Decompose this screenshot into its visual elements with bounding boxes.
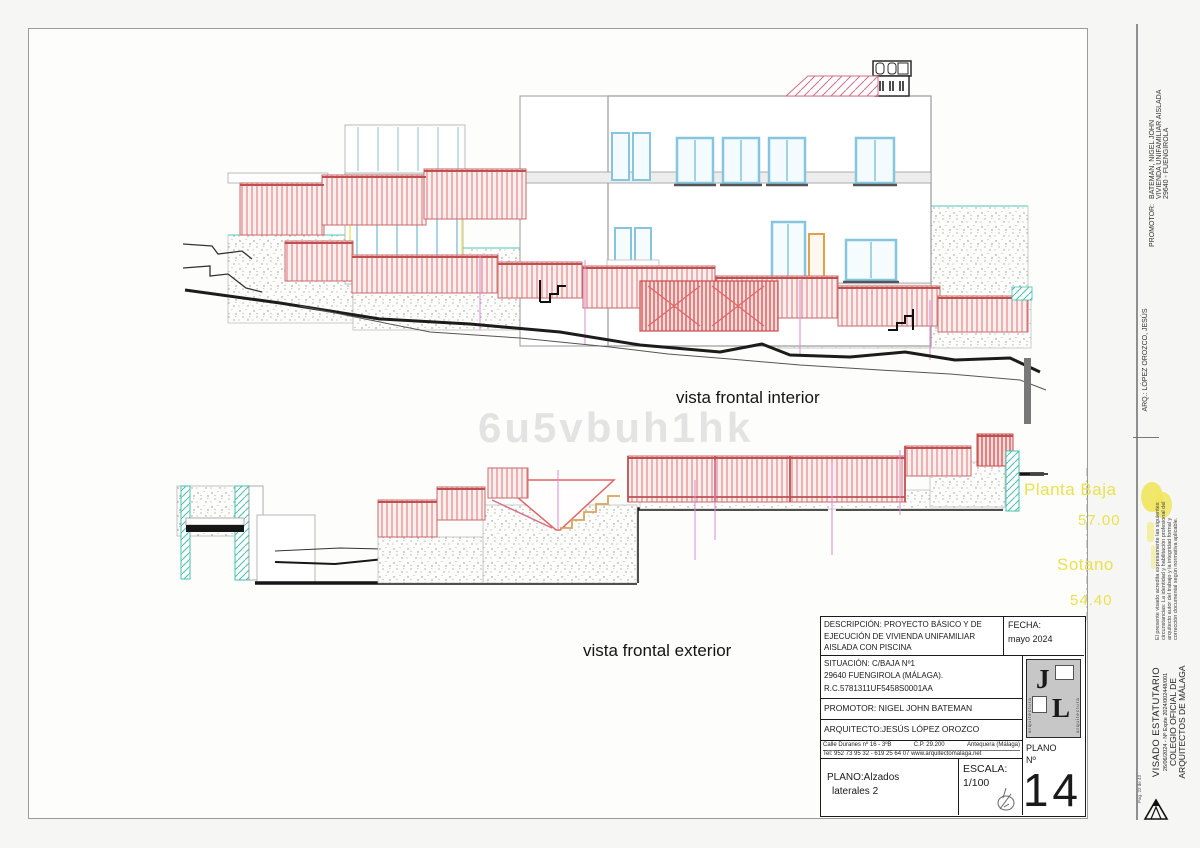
margin-promotor-name: BATEMAN, NIGEL JOHN (1149, 90, 1156, 199)
titleblock-descripcion: DESCRIPCIÓN: PROYECTO BÁSICO Y DE EJECUC… (821, 617, 1004, 656)
plan-sheet: { "sheet": { "watermark": "6u5vbuh1hk", … (0, 0, 1200, 848)
level-sotano-label: Sotano (1057, 555, 1114, 575)
label-vista-frontal-interior: vista frontal interior (676, 388, 820, 408)
elevation-exterior (177, 434, 1044, 583)
margin-promotor-type: VIVIENDA UNIFAMILIAR AISLADA (1156, 90, 1163, 199)
logo-notch (1055, 665, 1074, 680)
logo-notch (1032, 696, 1047, 713)
margin-visado-block: VISADO ESTATUTARIO 26/06/2024 - Nº Expte… (1152, 660, 1188, 784)
logo-letter-l: L (1052, 693, 1070, 724)
titleblock-plano: PLANO:Alzados laterales 2 (821, 759, 959, 815)
titleblock-promotor: PROMOTOR: NIGEL JOHN BATEMAN (821, 699, 1023, 720)
address-city: Antequera (Málaga) (967, 742, 1020, 750)
label-vista-frontal-exterior: vista frontal exterior (583, 641, 731, 661)
plano-num-label1: PLANO (1026, 743, 1057, 755)
signature-stamp-icon (992, 785, 1020, 813)
titleblock-escala: ESCALA: 1/100 (959, 759, 1023, 815)
descripcion-line: EJECUCIÓN DE VIVIENDA UNIFAMILIAR (824, 631, 1000, 643)
logo-letter-j: J (1036, 664, 1050, 695)
descripcion-line: AISLADA CON PISCINA (824, 642, 1000, 654)
situacion-line: 29640 FUENGIROLA (MÁLAGA). (824, 670, 1019, 682)
titleblock-address: Calle Duranes nº 16 - 3ºB C.P. 29.200 An… (821, 741, 1023, 759)
titleblock-arquitecto: ARQUITECTO:JESÚS LÓPEZ OROZCO (821, 720, 1023, 741)
margin-promotor-city: 29640 - FUENGIROLA (1163, 90, 1170, 199)
chimney (873, 61, 911, 96)
address-cp: C.P. 29.200 (914, 742, 945, 750)
titleblock-logo-cell: J L arquitectura arquitectura (1023, 656, 1084, 741)
fecha-value: mayo 2024 (1008, 633, 1080, 647)
plano-name-line1: PLANO:Alzados (827, 771, 952, 785)
logo-side-text: arquitectura (1075, 664, 1080, 733)
plano-name-line2: laterales 2 (827, 785, 952, 799)
situacion-line: R.C.5781311UF5458S0001AA (824, 683, 1019, 695)
level-planta-baja-value: 57.00 (1078, 512, 1121, 529)
level-sotano-value: 54.40 (1070, 592, 1113, 609)
title-block: DESCRIPCIÓN: PROYECTO BÁSICO Y DE EJECUC… (820, 616, 1086, 817)
titleblock-fecha: FECHA: mayo 2024 (1004, 617, 1084, 656)
level-planta-baja-label: Planta Baja (1024, 480, 1116, 500)
coa-malaga-logo-icon (1143, 797, 1169, 823)
descripcion-line: DESCRIPCIÓN: PROYECTO BÁSICO Y DE (824, 619, 1000, 631)
visado-title: VISADO ESTATUTARIO (1152, 660, 1163, 784)
margin-promotor-block: PROMOTOR: BATEMAN, NIGEL JOHN VIVIENDA U… (1149, 117, 1175, 247)
margin-promotor-label: PROMOTOR: (1149, 204, 1175, 247)
logo-side-text: arquitectura (1027, 664, 1032, 733)
address-phone: Tel: 952 73 95 32 - 619 25 64 07 www.arq… (823, 751, 1020, 759)
situacion-line: SITUACIÓN: C/BAJA Nº1 (824, 658, 1019, 670)
visado-colegio-line2: ARQUITECTOS DE MÁLAGA (1178, 660, 1188, 784)
margin-visado-disclaimer: El presente visado acredita expresamente… (1155, 424, 1179, 640)
disclaimer-line: corrección documental según normativa ap… (1173, 424, 1179, 640)
margin-architect-line: ARQ.: LÓPEZ OROZCO, JESÚS (1142, 305, 1152, 415)
plano-number: 14 (1023, 767, 1082, 813)
pergola-hatch (786, 76, 878, 96)
escala-label: ESCALA: (963, 762, 1018, 776)
section-cut-bar (1024, 358, 1031, 424)
elevation-interior (183, 61, 1046, 424)
jl-architecture-logo: J L arquitectura arquitectura (1026, 659, 1081, 738)
titleblock-situacion: SITUACIÓN: C/BAJA Nº1 29640 FUENGIROLA (… (821, 656, 1023, 699)
address-street: Calle Duranes nº 16 - 3ºB (823, 742, 891, 750)
pool-railing-block (640, 281, 778, 331)
titleblock-plano-num: PLANO Nº 14 (1023, 741, 1084, 815)
fecha-label: FECHA: (1008, 619, 1080, 633)
